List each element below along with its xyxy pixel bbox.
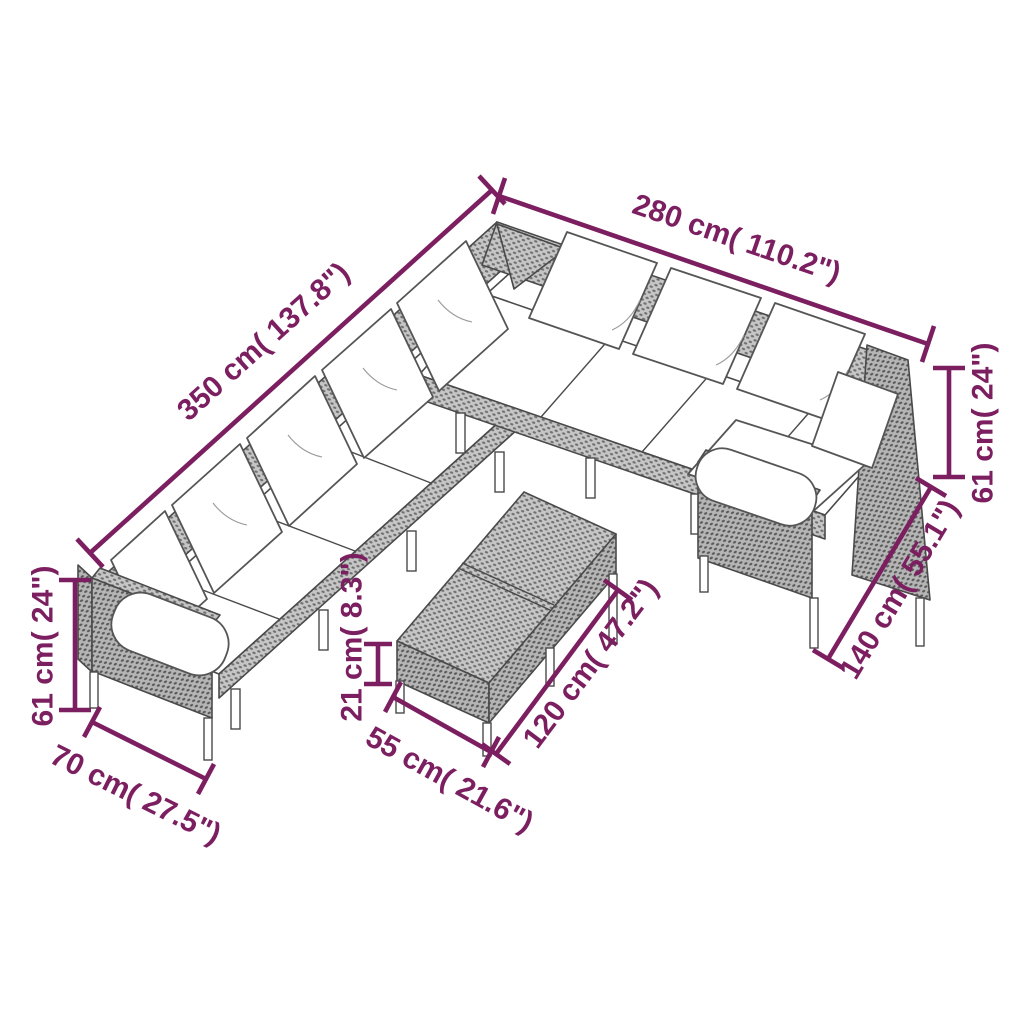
dimension-label: 70 cm( 27.5") bbox=[45, 739, 226, 852]
dimension-21: 21 cm( 8.3") bbox=[336, 552, 393, 721]
diagram-canvas: 350 cm( 137.8") 280 cm( 110.2") 61 cm( 2… bbox=[0, 0, 1024, 1024]
dimension-label: 280 cm( 110.2") bbox=[628, 188, 845, 290]
dimension-label: 55 cm( 21.6") bbox=[360, 720, 539, 839]
dimension-label: 61 cm( 24") bbox=[967, 343, 1000, 504]
dimension-label: 21 cm( 8.3") bbox=[336, 552, 369, 721]
product-dimension-diagram: 350 cm( 137.8") 280 cm( 110.2") 61 cm( 2… bbox=[0, 0, 1024, 1024]
dimension-61-right: 61 cm( 24") bbox=[933, 343, 1000, 504]
dimension-label: 61 cm( 24") bbox=[27, 566, 60, 727]
dimension-70: 70 cm( 27.5") bbox=[45, 707, 226, 851]
